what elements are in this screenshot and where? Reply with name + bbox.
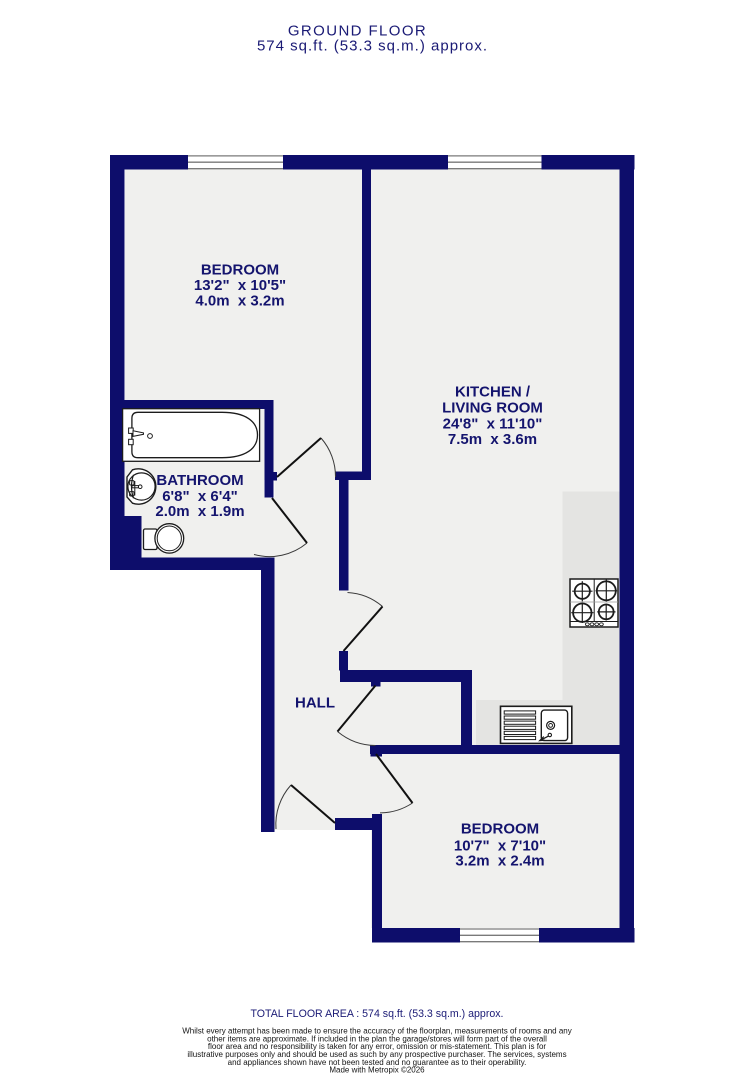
svg-text:Made with Metropix ©2026: Made with Metropix ©2026	[329, 1065, 425, 1074]
svg-text:4.0m x 3.2m: 4.0m x 3.2m	[195, 292, 284, 309]
svg-text:BEDROOM: BEDROOM	[201, 261, 279, 278]
svg-text:TOTAL FLOOR AREA : 574 sq.ft.: TOTAL FLOOR AREA : 574 sq.ft. (53.3 sq.m…	[251, 1008, 504, 1020]
svg-text:13'2" x 10'5": 13'2" x 10'5"	[194, 277, 286, 294]
svg-text:574 sq.ft. (53.3 sq.m.) approx: 574 sq.ft. (53.3 sq.m.) approx.	[257, 37, 488, 54]
svg-text:7.5m x 3.6m: 7.5m x 3.6m	[448, 431, 537, 448]
svg-text:2.0m x 1.9m: 2.0m x 1.9m	[155, 503, 244, 520]
svg-text:24'8" x 11'10": 24'8" x 11'10"	[443, 415, 543, 432]
svg-text:KITCHEN /: KITCHEN /	[455, 384, 531, 401]
svg-text:BEDROOM: BEDROOM	[461, 820, 539, 837]
svg-text:3.2m x 2.4m: 3.2m x 2.4m	[455, 852, 544, 869]
svg-text:HALL: HALL	[295, 694, 335, 711]
svg-text:LIVING ROOM: LIVING ROOM	[442, 400, 543, 417]
svg-text:BATHROOM: BATHROOM	[156, 472, 243, 489]
